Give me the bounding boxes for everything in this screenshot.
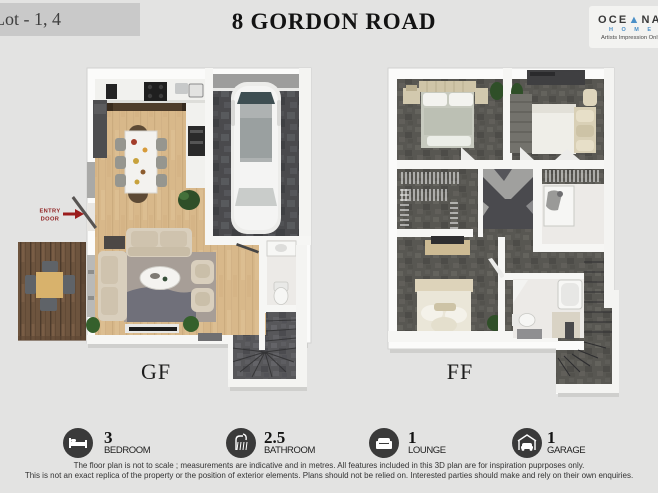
svg-text:FF: FF [447,359,473,384]
svg-text:DOOR: DOOR [41,217,60,223]
svg-text:GF: GF [141,359,171,384]
svg-text:ENTRY: ENTRY [39,209,60,215]
